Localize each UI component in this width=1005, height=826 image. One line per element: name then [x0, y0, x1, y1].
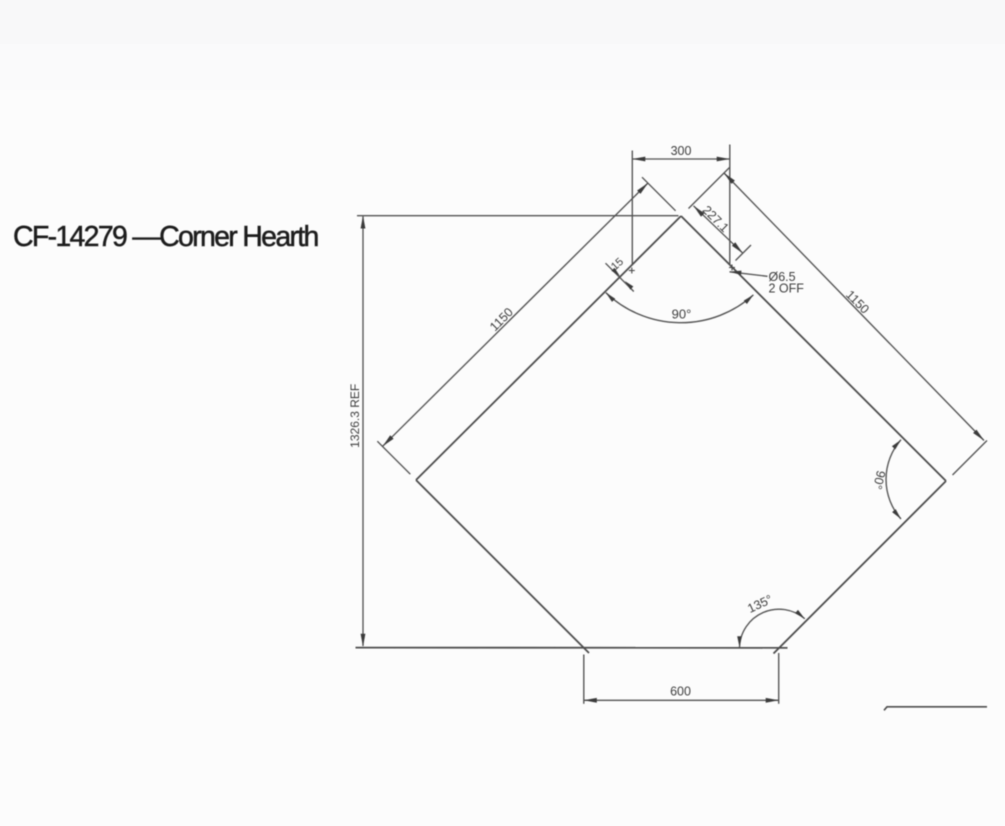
svg-text:CF-14279 —Corner Hearth: CF-14279 —Corner Hearth	[13, 221, 318, 253]
svg-text:2 OFF: 2 OFF	[769, 282, 805, 296]
svg-text:1326.3 REF: 1326.3 REF	[348, 384, 362, 448]
svg-text:300: 300	[671, 144, 692, 158]
svg-text:600: 600	[670, 685, 691, 699]
svg-text:90°: 90°	[672, 307, 692, 322]
